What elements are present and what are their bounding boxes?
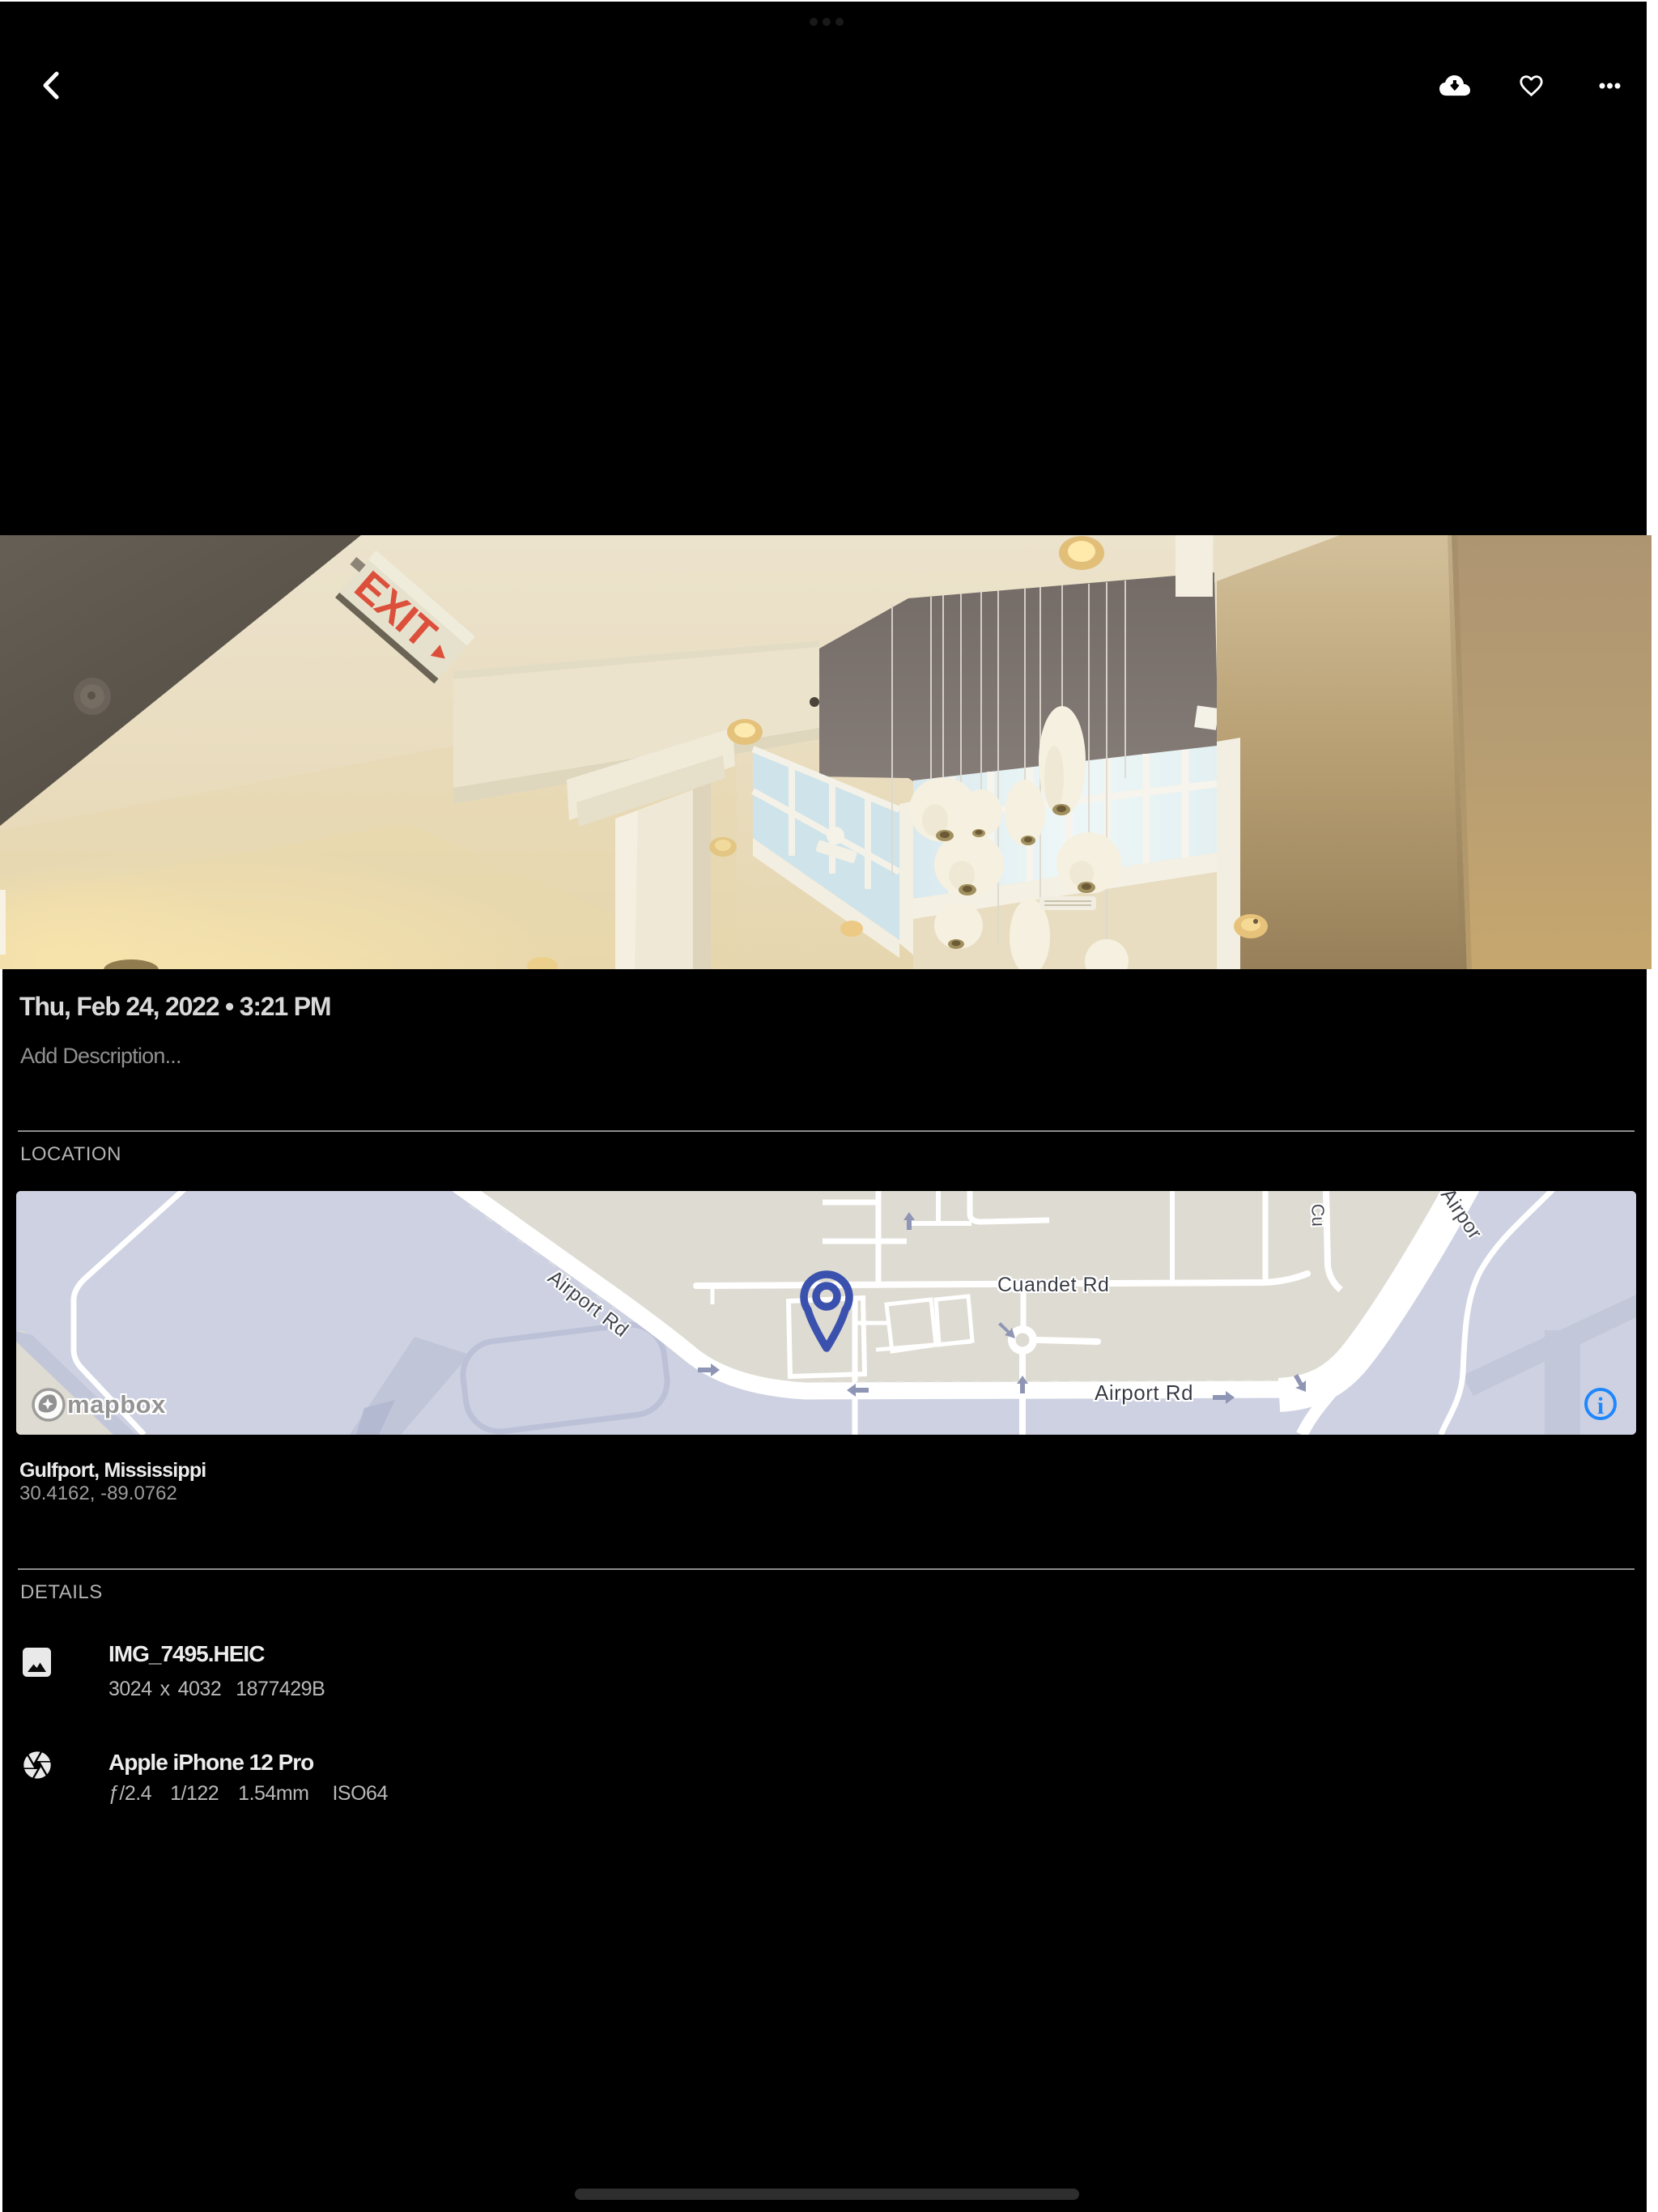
svg-text:Airport Rd: Airport Rd	[1095, 1380, 1193, 1405]
svg-text:mapbox: mapbox	[67, 1390, 166, 1419]
svg-text:Cu: Cu	[1307, 1203, 1329, 1227]
svg-text:Cuandet Rd: Cuandet Rd	[997, 1274, 1109, 1296]
svg-text:i: i	[1597, 1393, 1604, 1419]
